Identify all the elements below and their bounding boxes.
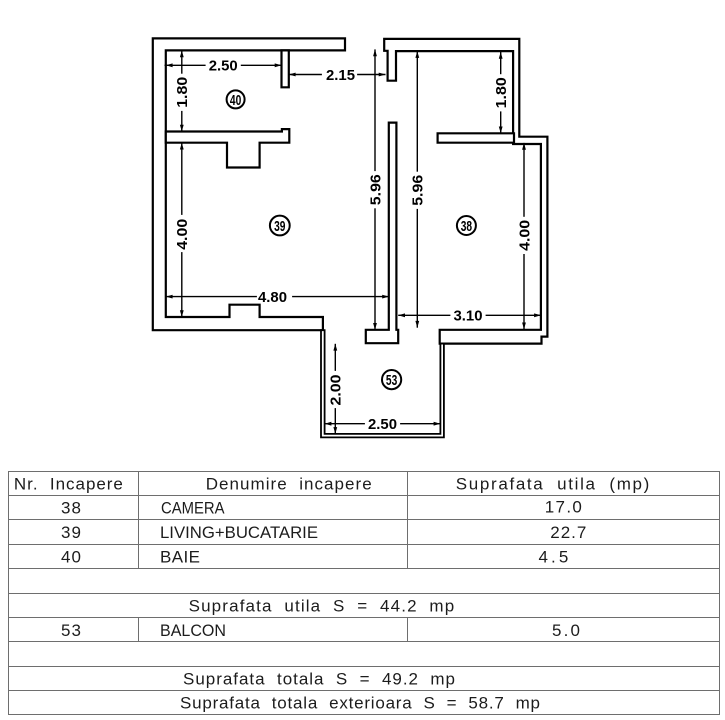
- svg-text:38: 38: [461, 217, 472, 235]
- svg-text:Denumire incapere: Denumire incapere: [206, 474, 372, 493]
- svg-text:1.80: 1.80: [493, 77, 510, 108]
- svg-text:40: 40: [230, 91, 241, 109]
- svg-text:4.5: 4.5: [539, 547, 569, 566]
- svg-text:2.50: 2.50: [209, 58, 238, 75]
- svg-text:53: 53: [61, 621, 81, 640]
- svg-text:BALCON: BALCON: [160, 621, 226, 640]
- svg-text:CAMERA: CAMERA: [161, 499, 225, 518]
- svg-text:38: 38: [61, 499, 81, 518]
- svg-text:5.96: 5.96: [410, 175, 427, 206]
- svg-text:Suprafata totala exterioara: Suprafata totala exterioara S = 58.7 mp: [180, 693, 540, 712]
- svg-text:Nr. Incapere: Nr. Incapere: [14, 474, 123, 493]
- svg-text:53: 53: [386, 371, 397, 389]
- svg-text:Suprafata totala S = 49.2: Suprafata totala S = 49.2 mp: [183, 669, 455, 688]
- svg-text:39: 39: [274, 217, 285, 235]
- svg-text:4.00: 4.00: [516, 220, 533, 251]
- svg-text:Suprafata utila S = 44.2: Suprafata utila S = 44.2 mp: [189, 596, 455, 615]
- svg-text:3.10: 3.10: [454, 308, 483, 325]
- svg-text:2.50: 2.50: [368, 416, 397, 433]
- svg-text:2.00: 2.00: [328, 375, 345, 406]
- svg-text:1.80: 1.80: [174, 77, 191, 108]
- svg-text:4.00: 4.00: [174, 219, 191, 250]
- svg-text:22.7: 22.7: [550, 523, 586, 542]
- svg-text:40: 40: [61, 547, 81, 566]
- svg-text:5.0: 5.0: [552, 621, 580, 640]
- svg-text:LIVING+BUCATARIE: LIVING+BUCATARIE: [160, 523, 318, 542]
- svg-text:Suprafata utila (mp): Suprafata utila (mp): [456, 474, 650, 493]
- svg-text:17.0: 17.0: [545, 498, 582, 517]
- svg-text:BAIE: BAIE: [160, 547, 200, 566]
- svg-text:2.15: 2.15: [326, 67, 355, 84]
- svg-text:4.80: 4.80: [258, 289, 287, 306]
- svg-text:39: 39: [61, 523, 81, 542]
- svg-text:5.96: 5.96: [367, 174, 384, 205]
